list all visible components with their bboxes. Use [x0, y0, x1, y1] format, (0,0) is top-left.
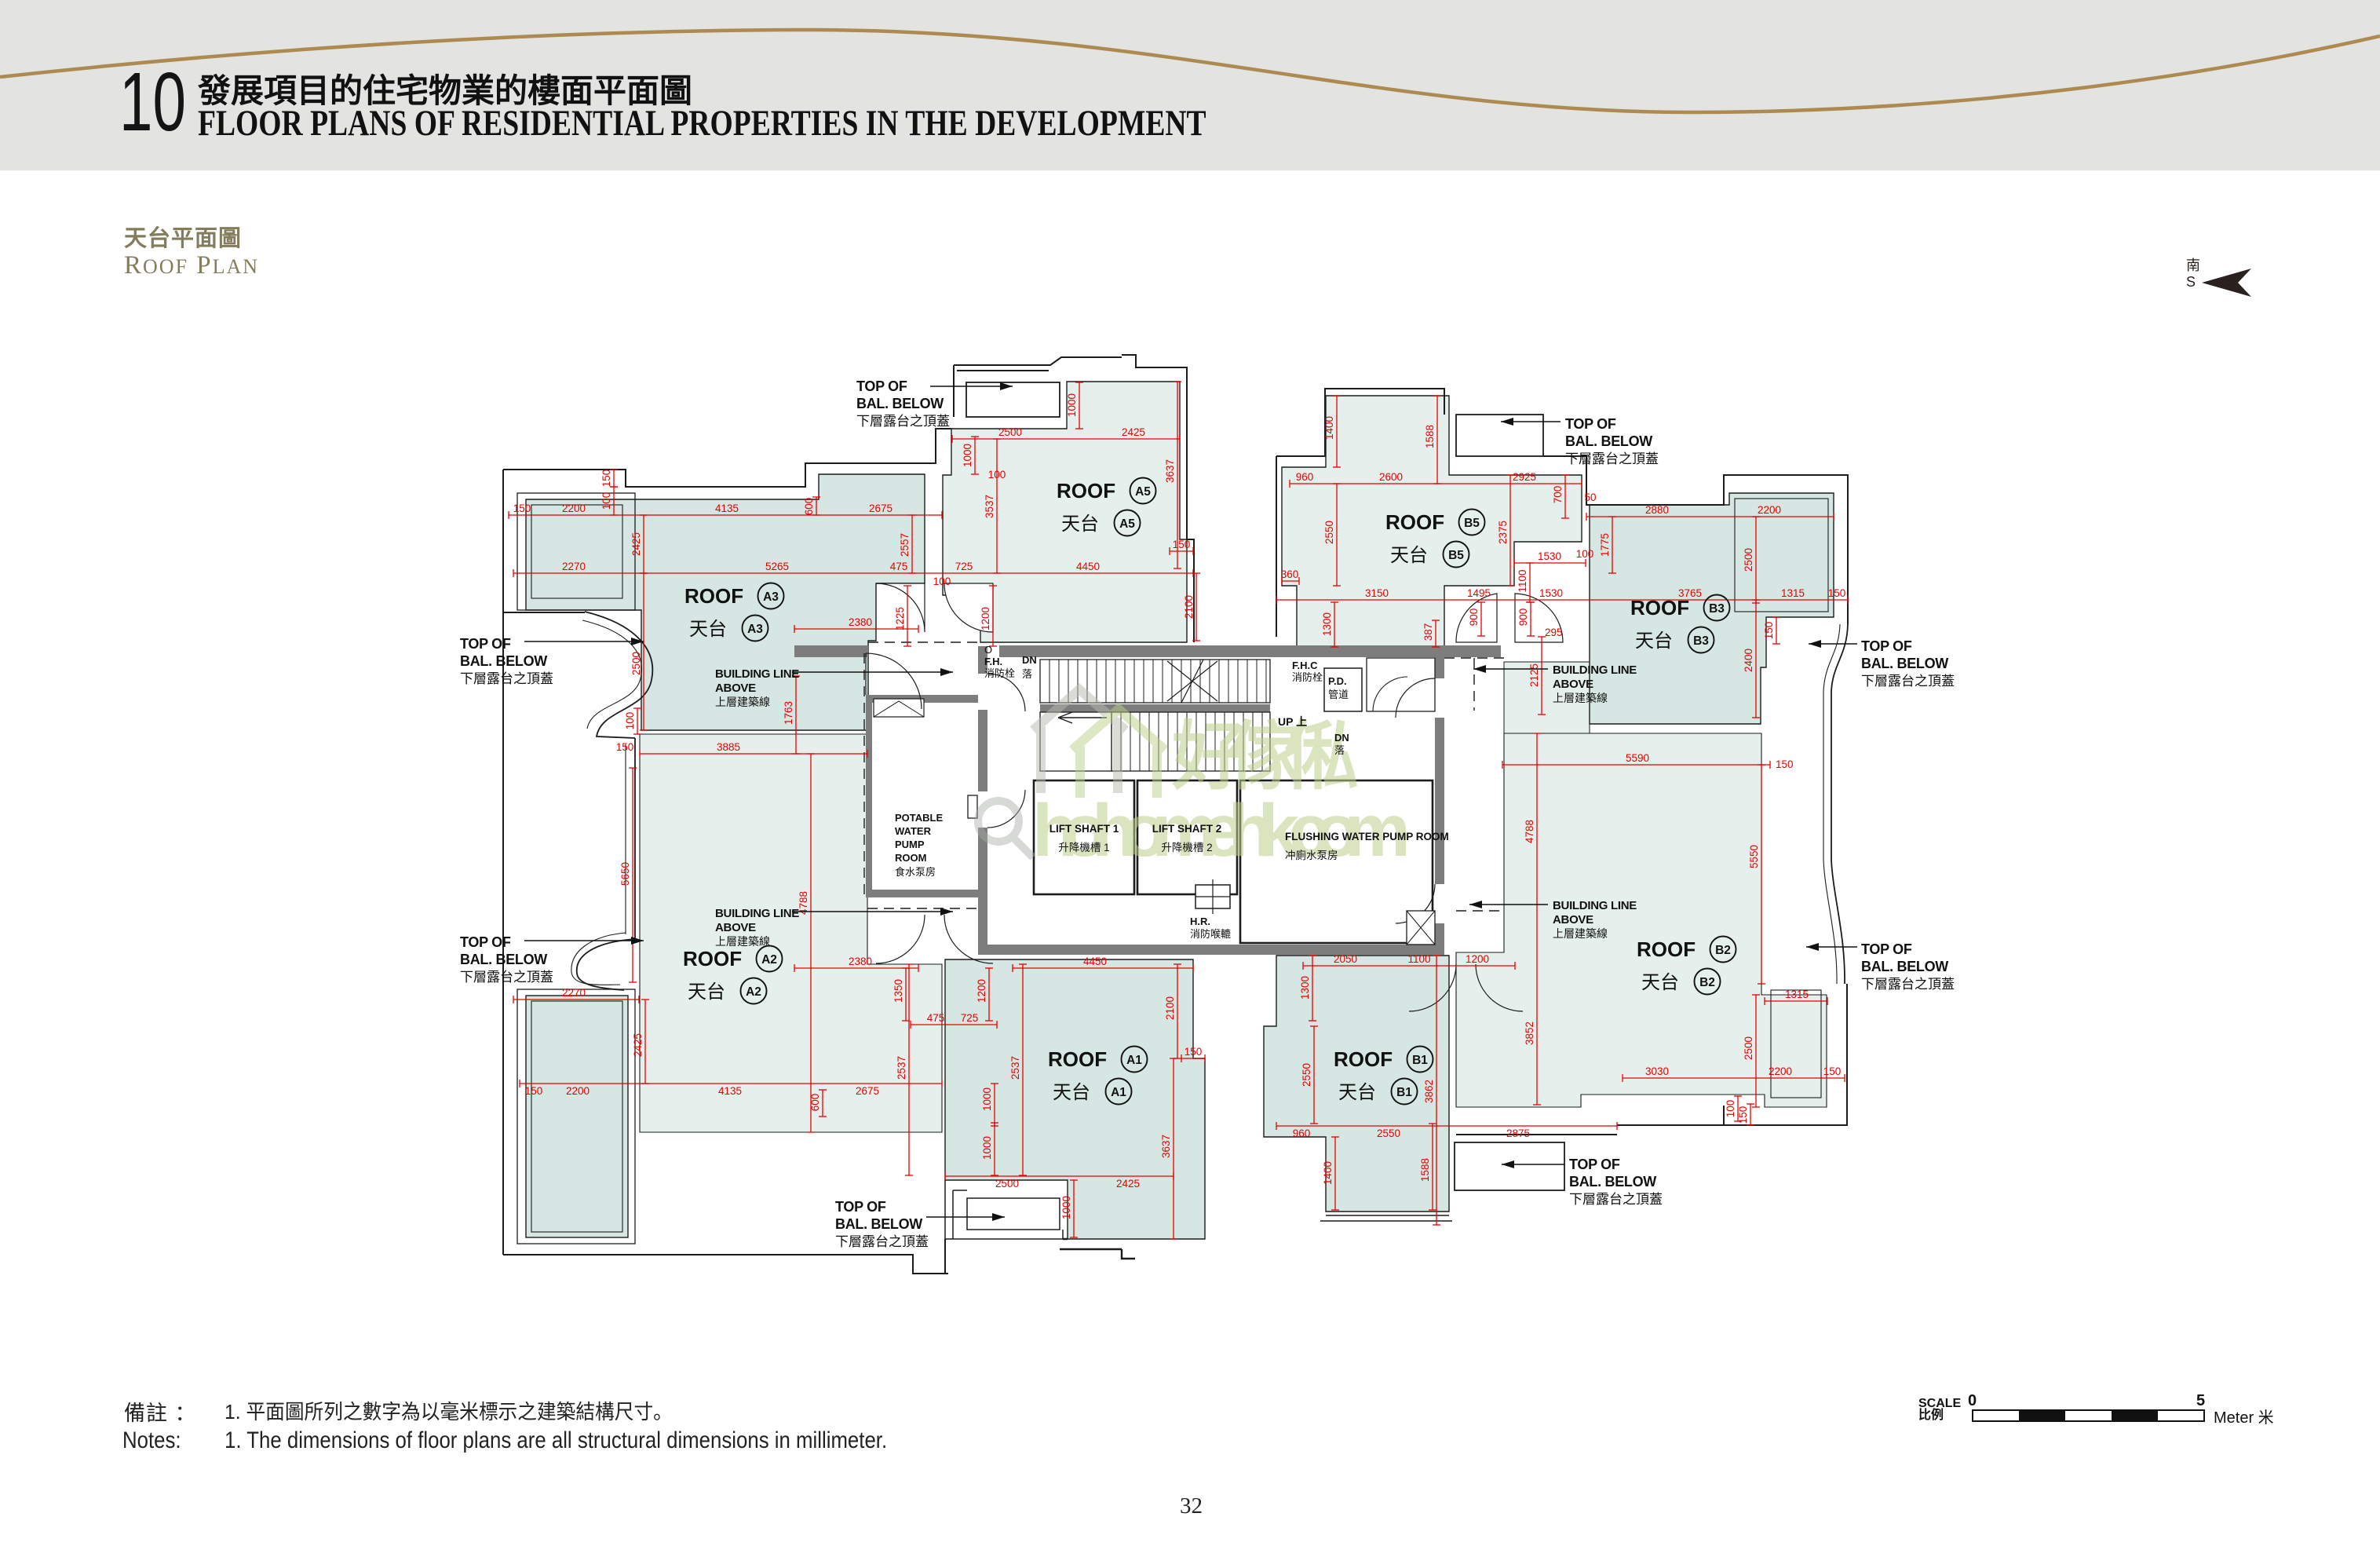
svg-text:3885: 3885 — [717, 741, 740, 753]
svg-text:2425: 2425 — [1116, 1178, 1140, 1190]
svg-text:A2: A2 — [746, 985, 761, 999]
svg-text:ROOF: ROOF — [683, 947, 742, 970]
svg-text:POTABLE: POTABLE — [895, 812, 943, 824]
svg-text:2050: 2050 — [1334, 953, 1357, 965]
svg-text:2380: 2380 — [849, 956, 872, 967]
svg-text:天台: 天台 — [688, 981, 725, 1003]
svg-text:1588: 1588 — [1419, 1158, 1431, 1182]
svg-text:4450: 4450 — [1083, 956, 1107, 967]
svg-text:TOP OF: TOP OF — [1569, 1157, 1620, 1172]
svg-text:150: 150 — [1763, 622, 1775, 640]
svg-text:3637: 3637 — [1164, 459, 1176, 483]
svg-text:1763: 1763 — [783, 701, 794, 725]
svg-text:下層露台之頂蓋: 下層露台之頂蓋 — [460, 970, 553, 985]
svg-text:2500: 2500 — [998, 426, 1022, 438]
svg-text:TOP OF: TOP OF — [835, 1199, 886, 1215]
svg-text:落: 落 — [1022, 668, 1032, 680]
svg-text:1300: 1300 — [1321, 612, 1333, 636]
svg-text:2500: 2500 — [1743, 548, 1754, 572]
svg-text:4788: 4788 — [1524, 820, 1535, 843]
svg-text:2500: 2500 — [995, 1178, 1019, 1190]
svg-text:BAL. BELOW: BAL. BELOW — [1565, 433, 1652, 449]
svg-text:1000: 1000 — [1066, 393, 1078, 417]
svg-text:ROOF: ROOF — [1057, 479, 1115, 503]
svg-text:ROOF: ROOF — [684, 584, 743, 608]
svg-text:2500: 2500 — [1743, 1036, 1754, 1060]
svg-text:5550: 5550 — [1748, 845, 1760, 868]
svg-text:TOP OF: TOP OF — [1565, 416, 1616, 432]
svg-text:2557: 2557 — [899, 533, 911, 557]
svg-text:2200: 2200 — [566, 1085, 590, 1097]
svg-text:LIFT SHAFT 2: LIFT SHAFT 2 — [1152, 823, 1222, 835]
svg-text:ROOF: ROOF — [1637, 937, 1696, 961]
svg-text:150: 150 — [513, 503, 531, 514]
svg-text:2537: 2537 — [1009, 1056, 1021, 1080]
svg-text:1588: 1588 — [1424, 425, 1436, 448]
svg-text:F.H.C: F.H.C — [1292, 660, 1318, 671]
svg-text:1530: 1530 — [1538, 550, 1561, 562]
svg-text:H.R.: H.R. — [1190, 916, 1210, 927]
svg-text:B3: B3 — [1693, 634, 1709, 648]
svg-text:150: 150 — [525, 1085, 543, 1097]
svg-text:BAL. BELOW: BAL. BELOW — [460, 653, 547, 669]
svg-text:TOP OF: TOP OF — [460, 636, 511, 652]
svg-text:A2: A2 — [761, 953, 777, 967]
svg-text:A3: A3 — [747, 623, 763, 636]
svg-text:1400: 1400 — [1323, 416, 1335, 440]
svg-text:100: 100 — [1576, 548, 1594, 560]
svg-text:1315: 1315 — [1785, 989, 1809, 1000]
svg-text:3537: 3537 — [984, 495, 995, 518]
svg-text:1000: 1000 — [981, 1087, 993, 1111]
svg-text:BAL. BELOW: BAL. BELOW — [835, 1216, 922, 1232]
svg-text:600: 600 — [809, 1094, 821, 1112]
svg-text:150: 150 — [1776, 758, 1794, 770]
svg-text:3862: 3862 — [1423, 1080, 1435, 1103]
svg-text:2200: 2200 — [1769, 1065, 1792, 1077]
svg-text:P.D.: P.D. — [1328, 675, 1347, 687]
svg-text:WATER: WATER — [895, 825, 932, 837]
svg-text:2675: 2675 — [856, 1085, 879, 1097]
svg-text:50: 50 — [1584, 492, 1596, 503]
svg-text:UP 上: UP 上 — [1278, 715, 1307, 728]
svg-text:消防栓: 消防栓 — [984, 667, 1015, 679]
svg-text:BUILDING LINE: BUILDING LINE — [715, 907, 799, 920]
svg-text:1300: 1300 — [1299, 976, 1311, 1000]
svg-text:食水泵房: 食水泵房 — [895, 866, 936, 878]
svg-text:3150: 3150 — [1365, 587, 1389, 599]
svg-text:3637: 3637 — [1160, 1135, 1172, 1158]
svg-text:ROOF: ROOF — [1385, 510, 1444, 534]
svg-text:5590: 5590 — [1626, 752, 1649, 764]
svg-text:1495: 1495 — [1467, 587, 1491, 599]
svg-text:下層露台之頂蓋: 下層露台之頂蓋 — [460, 671, 553, 686]
svg-text:B5: B5 — [1464, 517, 1480, 530]
svg-text:1100: 1100 — [1407, 953, 1430, 965]
svg-text:1000: 1000 — [981, 1136, 993, 1160]
svg-text:150: 150 — [1823, 1065, 1842, 1077]
svg-text:1350: 1350 — [892, 979, 904, 1003]
svg-text:1000: 1000 — [1060, 1196, 1072, 1219]
svg-text:150: 150 — [600, 470, 612, 488]
svg-text:落: 落 — [1334, 744, 1345, 756]
svg-text:2880: 2880 — [1645, 504, 1669, 516]
svg-text:2100: 2100 — [1164, 996, 1176, 1020]
svg-text:150: 150 — [616, 741, 634, 753]
svg-text:天台: 天台 — [1390, 545, 1428, 566]
svg-text:下層露台之頂蓋: 下層露台之頂蓋 — [856, 414, 950, 429]
svg-text:3030: 3030 — [1645, 1065, 1669, 1077]
svg-text:天台: 天台 — [1061, 514, 1099, 535]
svg-text:600: 600 — [803, 498, 815, 516]
svg-text:2550: 2550 — [1301, 1063, 1312, 1087]
svg-text:ABOVE: ABOVE — [715, 682, 756, 695]
svg-text:ABOVE: ABOVE — [1553, 678, 1593, 691]
svg-text:ROOM: ROOM — [895, 852, 926, 864]
svg-text:A5: A5 — [1135, 485, 1151, 499]
svg-text:100: 100 — [1725, 1100, 1736, 1118]
svg-text:900: 900 — [1517, 609, 1529, 627]
svg-text:A5: A5 — [1119, 517, 1135, 531]
svg-text:上層建築線: 上層建築線 — [1553, 927, 1608, 940]
svg-text:下層露台之頂蓋: 下層露台之頂蓋 — [1861, 674, 1955, 689]
svg-text:升降機槽 2: 升降機槽 2 — [1161, 842, 1212, 853]
svg-text:B3: B3 — [1709, 602, 1725, 616]
svg-text:A1: A1 — [1126, 1054, 1142, 1067]
svg-text:2270: 2270 — [562, 987, 586, 999]
svg-text:天台: 天台 — [1635, 630, 1673, 652]
svg-text:冲廁水泵房: 冲廁水泵房 — [1285, 849, 1338, 861]
svg-text:1775: 1775 — [1599, 533, 1611, 557]
svg-text:2200: 2200 — [562, 503, 586, 514]
svg-text:1530: 1530 — [1539, 587, 1563, 599]
svg-text:天台: 天台 — [1053, 1082, 1090, 1103]
svg-text:2125: 2125 — [1528, 663, 1540, 687]
svg-text:5650: 5650 — [619, 862, 631, 886]
svg-text:100: 100 — [600, 492, 612, 510]
svg-text:2925: 2925 — [1513, 471, 1536, 483]
svg-text:天台: 天台 — [689, 619, 727, 640]
svg-text:2100: 2100 — [1183, 595, 1195, 619]
svg-text:725: 725 — [955, 561, 973, 572]
svg-text:ROOF: ROOF — [1048, 1047, 1107, 1071]
svg-text:升降機槽 1: 升降機槽 1 — [1058, 842, 1109, 853]
svg-text:B1: B1 — [1396, 1086, 1412, 1099]
svg-text:管道: 管道 — [1328, 689, 1349, 700]
svg-text:PUMP: PUMP — [895, 839, 925, 850]
svg-text:2425: 2425 — [1122, 426, 1145, 438]
svg-text:A1: A1 — [1111, 1086, 1126, 1099]
svg-text:BUILDING LINE: BUILDING LINE — [1553, 899, 1637, 912]
svg-text:BAL. BELOW: BAL. BELOW — [1861, 959, 1948, 974]
svg-text:上層建築線: 上層建築線 — [715, 935, 770, 948]
svg-text:BAL. BELOW: BAL. BELOW — [1861, 656, 1948, 671]
svg-text:1000: 1000 — [962, 444, 973, 467]
svg-text:ABOVE: ABOVE — [715, 921, 756, 934]
svg-text:A3: A3 — [763, 590, 779, 604]
svg-text:150: 150 — [1828, 587, 1846, 599]
svg-text:1315: 1315 — [1781, 587, 1805, 599]
svg-text:下層露台之頂蓋: 下層露台之頂蓋 — [835, 1234, 929, 1249]
svg-text:2400: 2400 — [1743, 649, 1754, 672]
svg-text:上層建築線: 上層建築線 — [1553, 692, 1608, 704]
svg-text:天台: 天台 — [1338, 1082, 1376, 1103]
svg-text:B2: B2 — [1699, 976, 1715, 989]
svg-text:100: 100 — [624, 712, 636, 730]
svg-text:1225: 1225 — [894, 607, 906, 630]
svg-text:好傢俬: 好傢俬 — [1171, 715, 1359, 799]
svg-text:BUILDING LINE: BUILDING LINE — [1553, 663, 1637, 677]
svg-text:下層露台之頂蓋: 下層露台之頂蓋 — [1861, 977, 1955, 992]
svg-text:700: 700 — [1552, 486, 1564, 504]
svg-text:4135: 4135 — [718, 1085, 742, 1097]
svg-text:725: 725 — [961, 1012, 979, 1024]
svg-text:2875: 2875 — [1506, 1128, 1530, 1139]
svg-text:960: 960 — [1296, 471, 1314, 483]
svg-text:1200: 1200 — [976, 979, 987, 1003]
svg-text:TOP OF: TOP OF — [460, 934, 511, 950]
svg-text:B1: B1 — [1412, 1054, 1428, 1067]
svg-text:LIFT SHAFT 1: LIFT SHAFT 1 — [1049, 823, 1119, 835]
svg-text:5265: 5265 — [765, 561, 789, 572]
svg-text:BUILDING LINE: BUILDING LINE — [715, 667, 799, 681]
svg-text:ABOVE: ABOVE — [1553, 913, 1593, 927]
svg-text:消防栓: 消防栓 — [1292, 671, 1323, 683]
svg-text:475: 475 — [927, 1012, 945, 1024]
svg-text:150: 150 — [1737, 1106, 1749, 1124]
svg-text:2270: 2270 — [562, 561, 586, 572]
svg-text:2600: 2600 — [1379, 471, 1403, 483]
svg-text:387: 387 — [1422, 623, 1434, 641]
svg-text:ROOF: ROOF — [1630, 596, 1689, 619]
svg-text:2380: 2380 — [849, 616, 872, 628]
svg-text:150: 150 — [1185, 1046, 1203, 1058]
svg-text:295: 295 — [1545, 627, 1563, 638]
svg-text:下層露台之頂蓋: 下層露台之頂蓋 — [1565, 451, 1659, 466]
svg-text:F.H.: F.H. — [984, 656, 1002, 667]
svg-text:O: O — [984, 644, 992, 656]
svg-text:ROOF: ROOF — [1334, 1047, 1393, 1071]
svg-text:B5: B5 — [1448, 549, 1464, 562]
svg-text:1200: 1200 — [1466, 953, 1489, 965]
svg-text:1100: 1100 — [1517, 569, 1528, 592]
svg-text:1200: 1200 — [980, 607, 991, 630]
svg-text:DN: DN — [1334, 732, 1349, 744]
svg-text:上層建築線: 上層建築線 — [715, 696, 770, 708]
svg-text:FLUSHING WATER PUMP ROOM: FLUSHING WATER PUMP ROOM — [1285, 831, 1449, 842]
svg-text:TOP OF: TOP OF — [1861, 638, 1912, 654]
svg-text:2200: 2200 — [1758, 504, 1781, 516]
svg-text:BAL. BELOW: BAL. BELOW — [856, 396, 944, 411]
svg-text:BAL. BELOW: BAL. BELOW — [1569, 1174, 1656, 1190]
svg-text:2425: 2425 — [630, 532, 642, 556]
svg-text:下層露台之頂蓋: 下層露台之頂蓋 — [1569, 1192, 1663, 1207]
svg-text:2425: 2425 — [632, 1033, 644, 1057]
svg-text:2375: 2375 — [1497, 521, 1509, 544]
svg-text:150: 150 — [1173, 539, 1191, 550]
svg-text:DN: DN — [1022, 654, 1037, 666]
svg-text:475: 475 — [890, 561, 908, 572]
svg-text:900: 900 — [1468, 609, 1480, 627]
svg-text:960: 960 — [1293, 1128, 1311, 1139]
svg-text:TOP OF: TOP OF — [856, 378, 907, 394]
svg-text:B2: B2 — [1715, 944, 1731, 957]
svg-text:天台: 天台 — [1641, 972, 1679, 993]
svg-text:3852: 3852 — [1524, 1022, 1535, 1045]
svg-text:100: 100 — [933, 576, 951, 587]
svg-text:360: 360 — [1281, 568, 1299, 580]
svg-text:4450: 4450 — [1076, 561, 1100, 572]
svg-text:4135: 4135 — [715, 503, 739, 514]
svg-text:2500: 2500 — [630, 652, 642, 675]
svg-text:2537: 2537 — [896, 1056, 907, 1080]
svg-text:TOP OF: TOP OF — [1861, 941, 1912, 957]
svg-text:2675: 2675 — [869, 503, 892, 514]
svg-text:BAL. BELOW: BAL. BELOW — [460, 952, 547, 967]
svg-text:1400: 1400 — [1322, 1161, 1334, 1185]
svg-text:2550: 2550 — [1377, 1128, 1400, 1139]
svg-text:消防喉轆: 消防喉轆 — [1190, 928, 1231, 940]
svg-text:2550: 2550 — [1323, 521, 1335, 544]
